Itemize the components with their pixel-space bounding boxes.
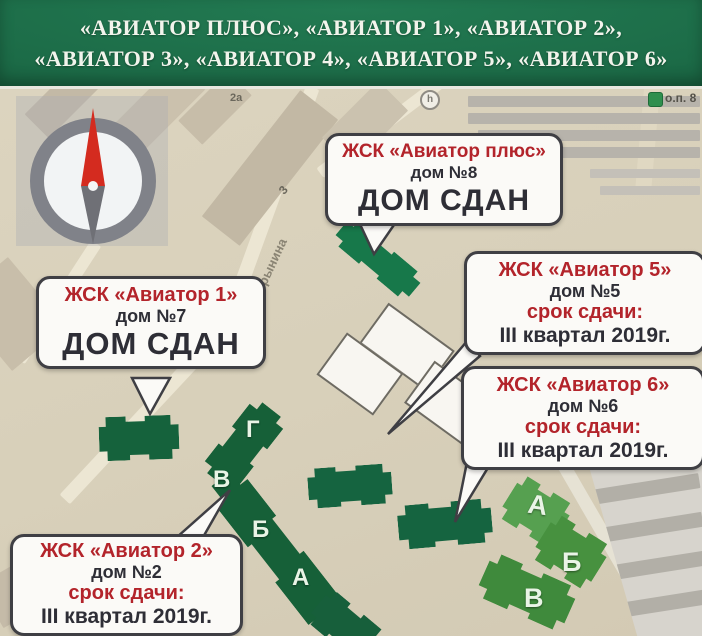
site-map: Г В Б А А Б В 2а 3 Трынина h о.п. 8 bbox=[0, 89, 702, 636]
callout-status: ДОМ СДАН bbox=[332, 183, 556, 219]
callout-house: дом №2 bbox=[17, 562, 236, 582]
callout-aviator-5: ЖСК «Авиатор 5» дом №5 срок сдачи: III к… bbox=[464, 251, 702, 355]
callout-deadline: III квартал 2019г. bbox=[468, 439, 698, 463]
callout-title: ЖСК «Авиатор 5» bbox=[471, 259, 699, 281]
header-line-2: «АВИАТОР 3», «АВИАТОР 4», «АВИАТОР 5», «… bbox=[34, 43, 667, 74]
callout-deadline-label: срок сдачи: bbox=[468, 416, 698, 439]
header-banner: «АВИАТОР ПЛЮС», «АВИАТОР 1», «АВИАТОР 2»… bbox=[0, 0, 702, 86]
callout-aviator-1: ЖСК «Авиатор 1» дом №7 ДОМ СДАН bbox=[36, 276, 266, 369]
callout-status: ДОМ СДАН bbox=[43, 326, 259, 362]
callout-title: ЖСК «Авиатор 2» bbox=[17, 540, 236, 562]
callout-deadline: III квартал 2019г. bbox=[17, 605, 236, 629]
callout-aviator-plus: ЖСК «Авиатор плюс» дом №8 ДОМ СДАН bbox=[325, 133, 563, 226]
poster: «АВИАТОР ПЛЮС», «АВИАТОР 1», «АВИАТОР 2»… bbox=[0, 0, 702, 636]
callout-title: ЖСК «Авиатор 6» bbox=[468, 374, 698, 396]
callout-aviator-6: ЖСК «Авиатор 6» дом №6 срок сдачи: III к… bbox=[461, 366, 702, 470]
callout-title: ЖСК «Авиатор 1» bbox=[43, 284, 259, 306]
header-line-1: «АВИАТОР ПЛЮС», «АВИАТОР 1», «АВИАТОР 2»… bbox=[80, 12, 622, 43]
callout-house: дом №6 bbox=[468, 396, 698, 416]
callout-title: ЖСК «Авиатор плюс» bbox=[332, 141, 556, 163]
callout-house: дом №8 bbox=[332, 163, 556, 183]
callout-aviator-2: ЖСК «Авиатор 2» дом №2 срок сдачи: III к… bbox=[10, 534, 243, 636]
callout-deadline-label: срок сдачи: bbox=[471, 301, 699, 324]
callout-house: дом №7 bbox=[43, 306, 259, 326]
callout-deadline-label: срок сдачи: bbox=[17, 582, 236, 605]
callout-house: дом №5 bbox=[471, 281, 699, 301]
callout-deadline: III квартал 2019г. bbox=[471, 324, 699, 348]
